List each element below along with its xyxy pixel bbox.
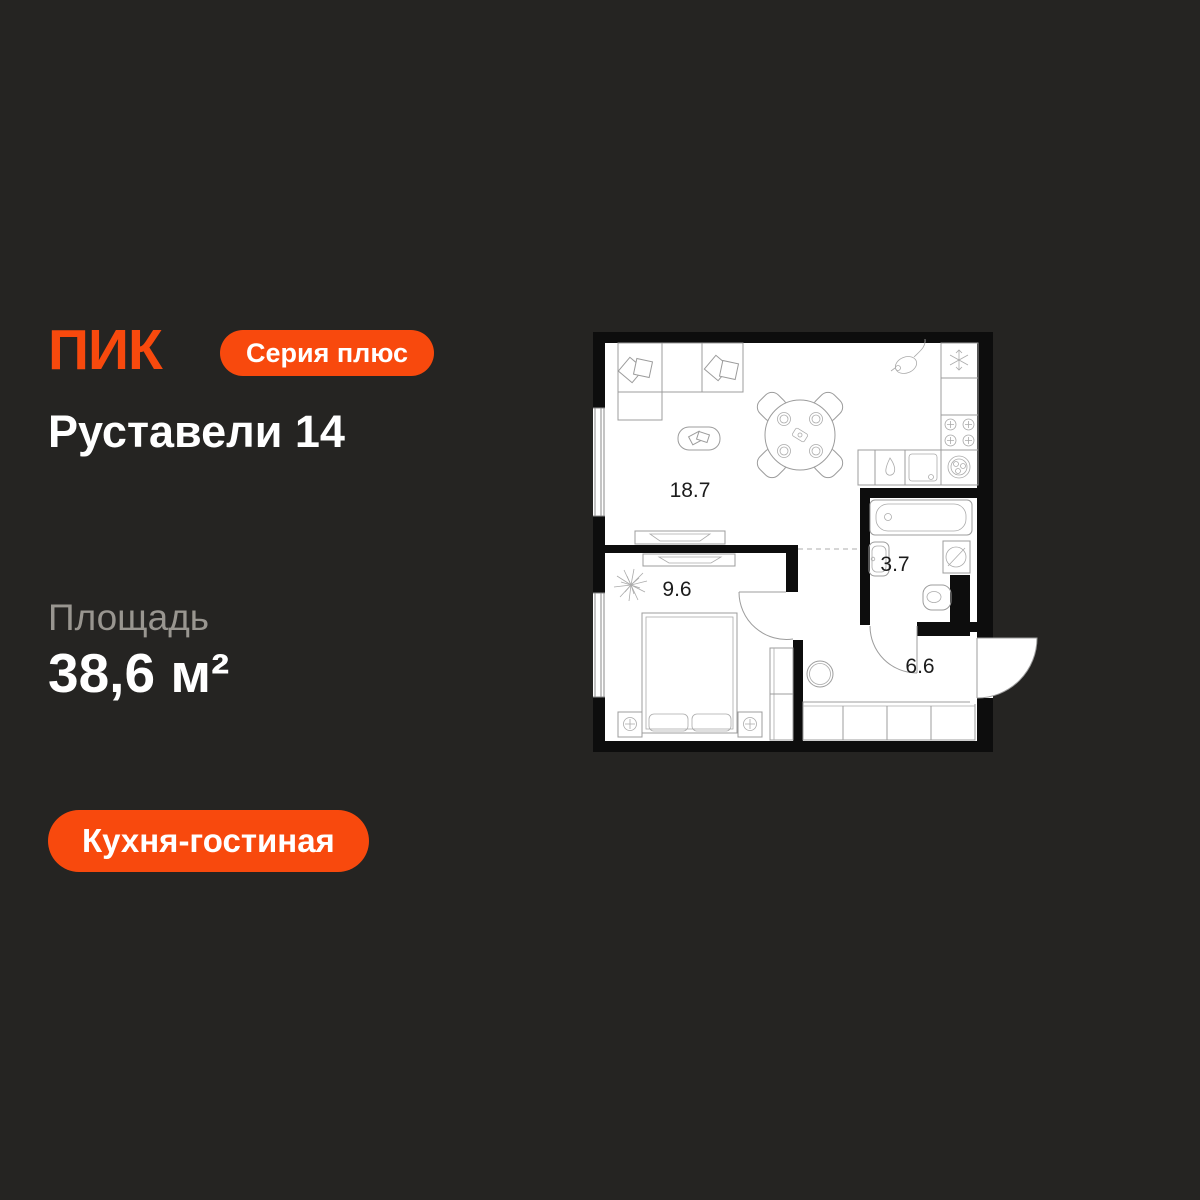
room-label-bedroom: 9.6 xyxy=(662,578,691,601)
promo-card: ПИК Серия плюс Руставели 14 Площадь 38,6… xyxy=(0,0,1200,1200)
project-title: Руставели 14 xyxy=(48,406,345,458)
area-label: Площадь xyxy=(48,597,209,639)
floorplan: 18.7 9.6 3.7 6.6 xyxy=(593,330,1053,755)
dining-set-icon xyxy=(754,389,847,482)
room-tag-badge: Кухня-гостиная xyxy=(48,810,369,872)
room-label-bathroom: 3.7 xyxy=(880,553,909,576)
area-value: 38,6 м² xyxy=(48,641,229,705)
series-badge: Серия плюс xyxy=(220,330,434,376)
series-badge-label: Серия плюс xyxy=(246,338,408,369)
entrance-door-arc xyxy=(970,632,1037,704)
pik-logo: ПИК xyxy=(48,322,162,379)
room-tag-label: Кухня-гостиная xyxy=(82,822,335,860)
room-label-hallway: 6.6 xyxy=(905,655,934,678)
room-label-kitchen-living: 18.7 xyxy=(670,479,711,502)
